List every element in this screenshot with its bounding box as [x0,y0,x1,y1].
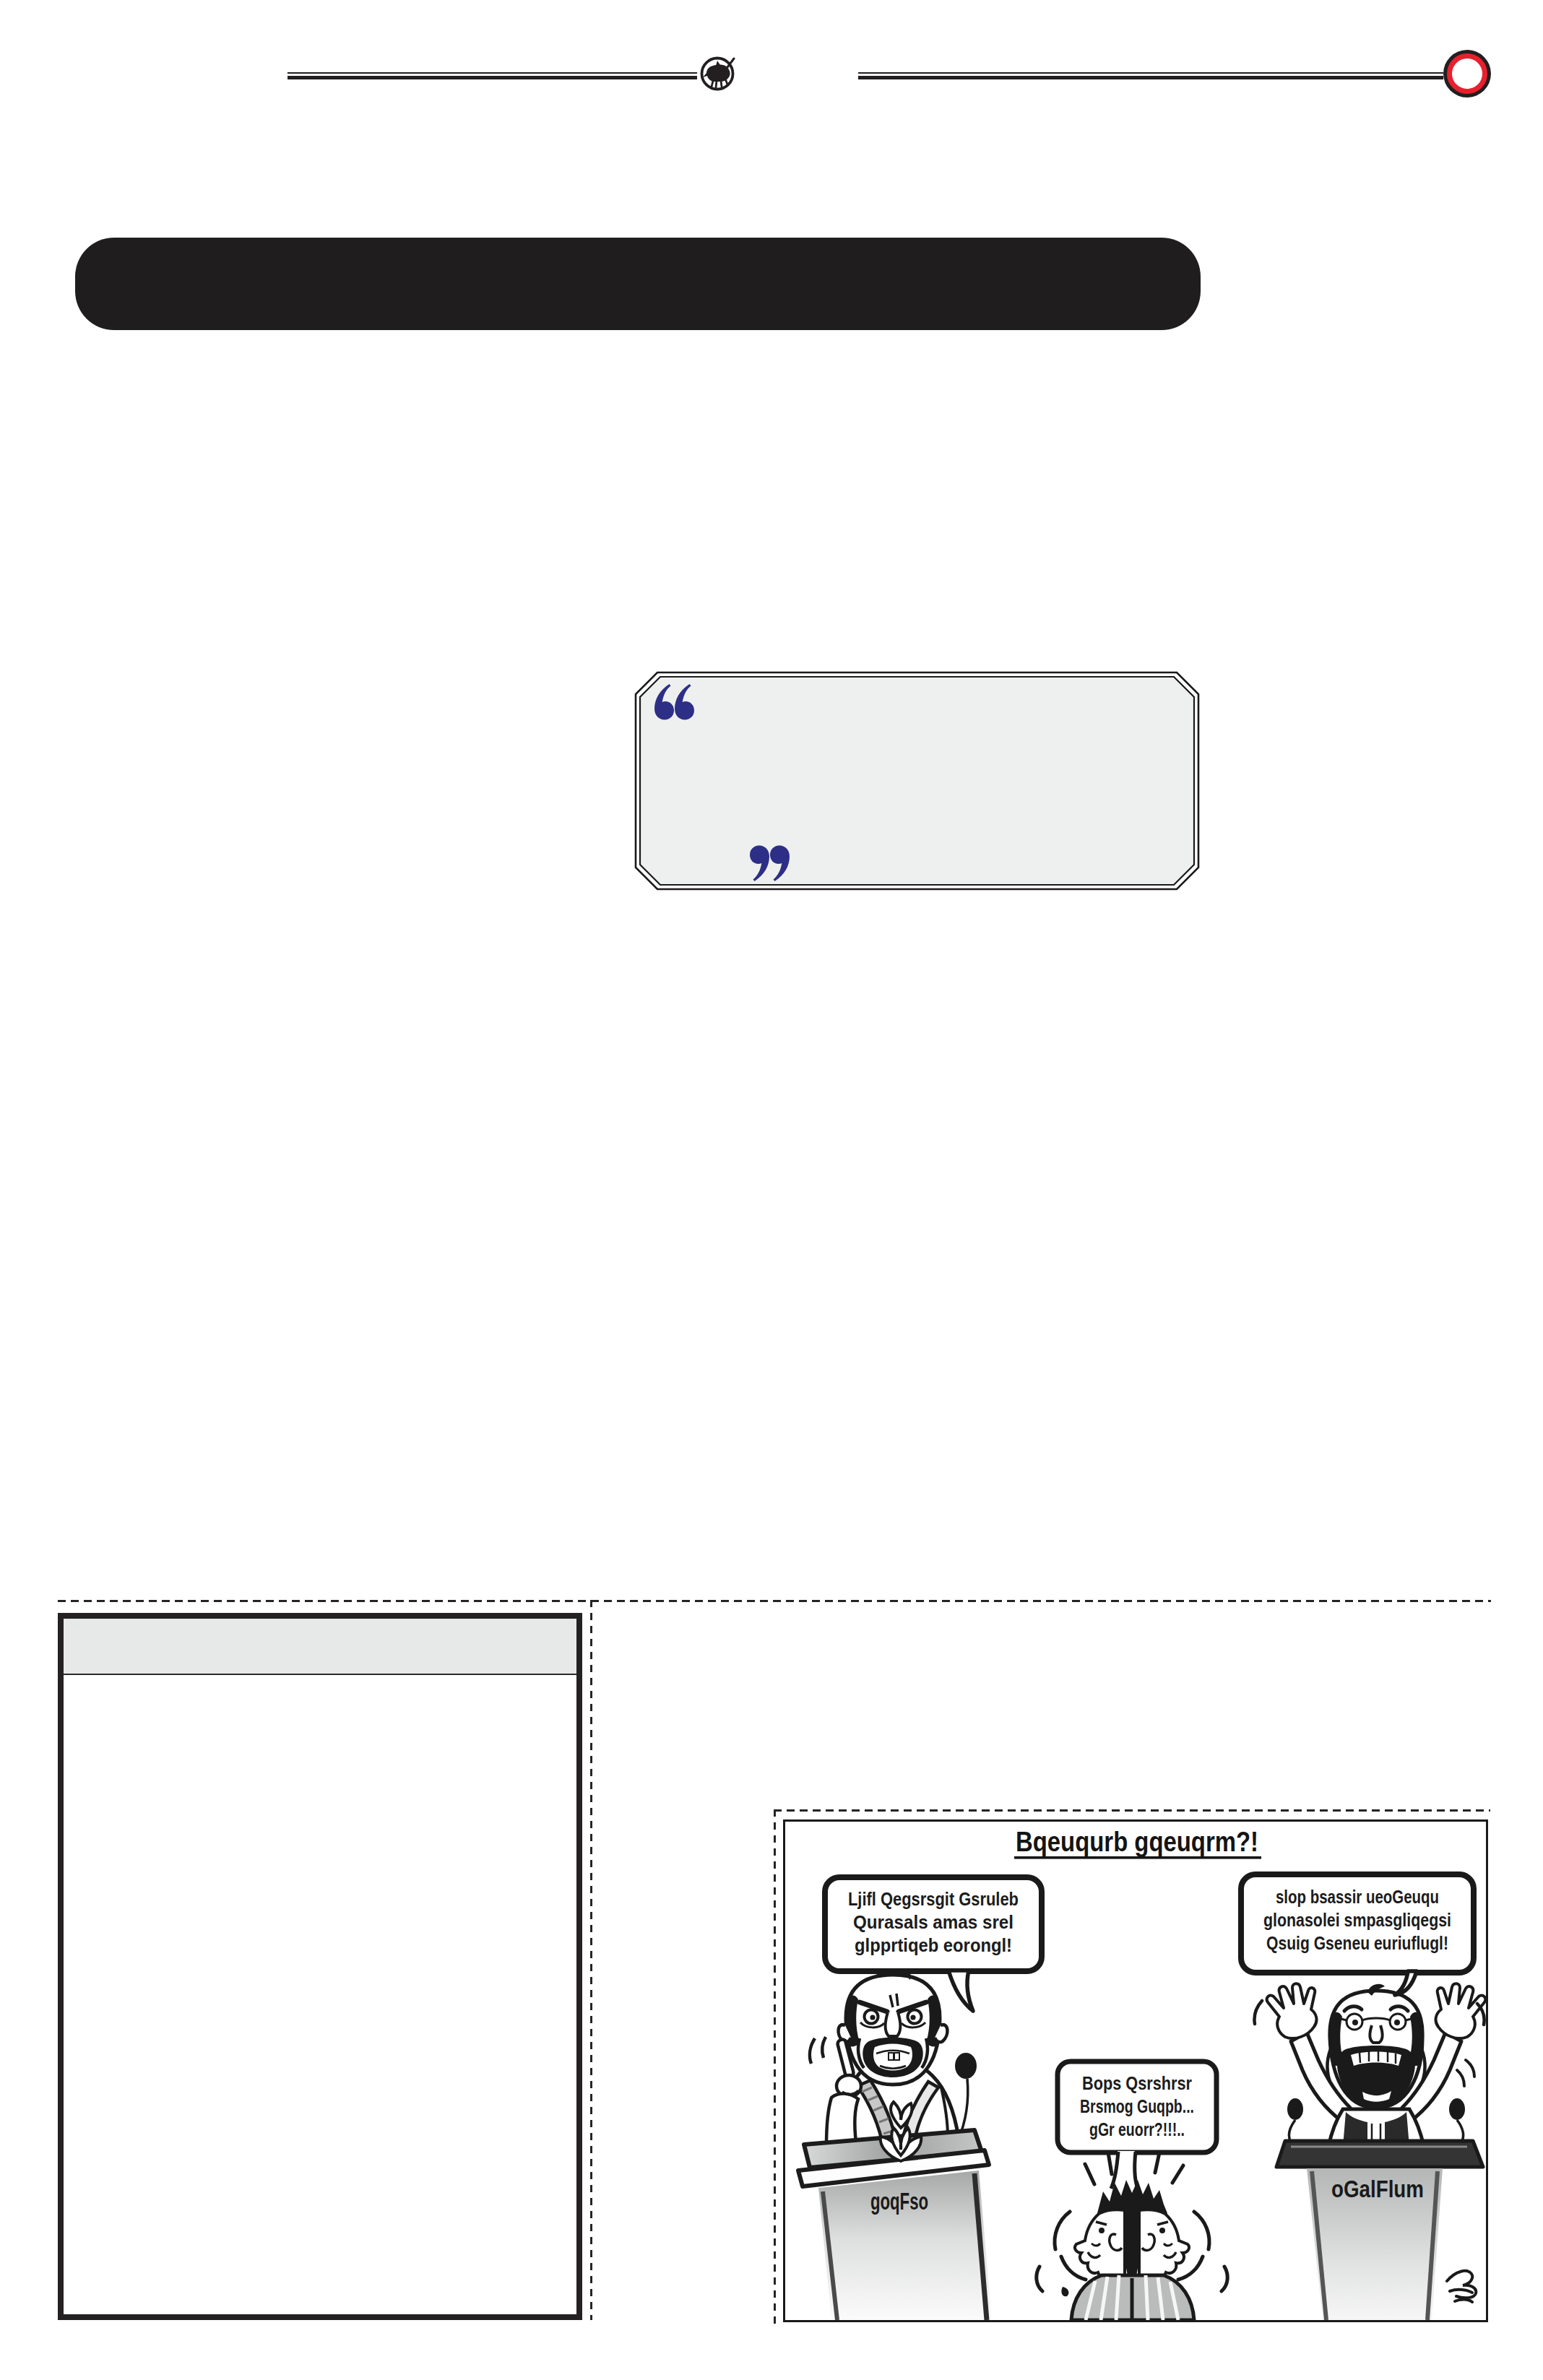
svg-text:glpprtiqeb eorongl!: glpprtiqeb eorongl! [855,1934,1012,1956]
svg-text:Ljifl Qegsrsgit Gsruleb: Ljifl Qegsrsgit Gsruleb [848,1888,1019,1910]
svg-text:Brsmog Guqpb...: Brsmog Guqpb... [1080,2096,1194,2116]
svg-text:goqFso: goqFso [870,2188,928,2215]
svg-text:Qurasals amas srel: Qurasals amas srel [853,1911,1013,1933]
svg-text:Bops Qsrshrsr: Bops Qsrshrsr [1082,2073,1192,2093]
svg-text:Bqeuqurb gqeuqrm?!: Bqeuqurb gqeuqrm?! [1016,1827,1258,1857]
svg-text:slop bsassir ueoGeuqu: slop bsassir ueoGeuqu [1276,1886,1439,1908]
svg-text:Qsuig Gseneu euriuflugl!: Qsuig Gseneu euriuflugl! [1266,1932,1448,1954]
svg-text:glonasolei smpasgliqegsi: glonasolei smpasgliqegsi [1263,1909,1451,1931]
svg-text:oGalFlum: oGalFlum [1331,2176,1424,2202]
svg-text:gGr euorr?!!!..: gGr euorr?!!!.. [1089,2119,1185,2139]
